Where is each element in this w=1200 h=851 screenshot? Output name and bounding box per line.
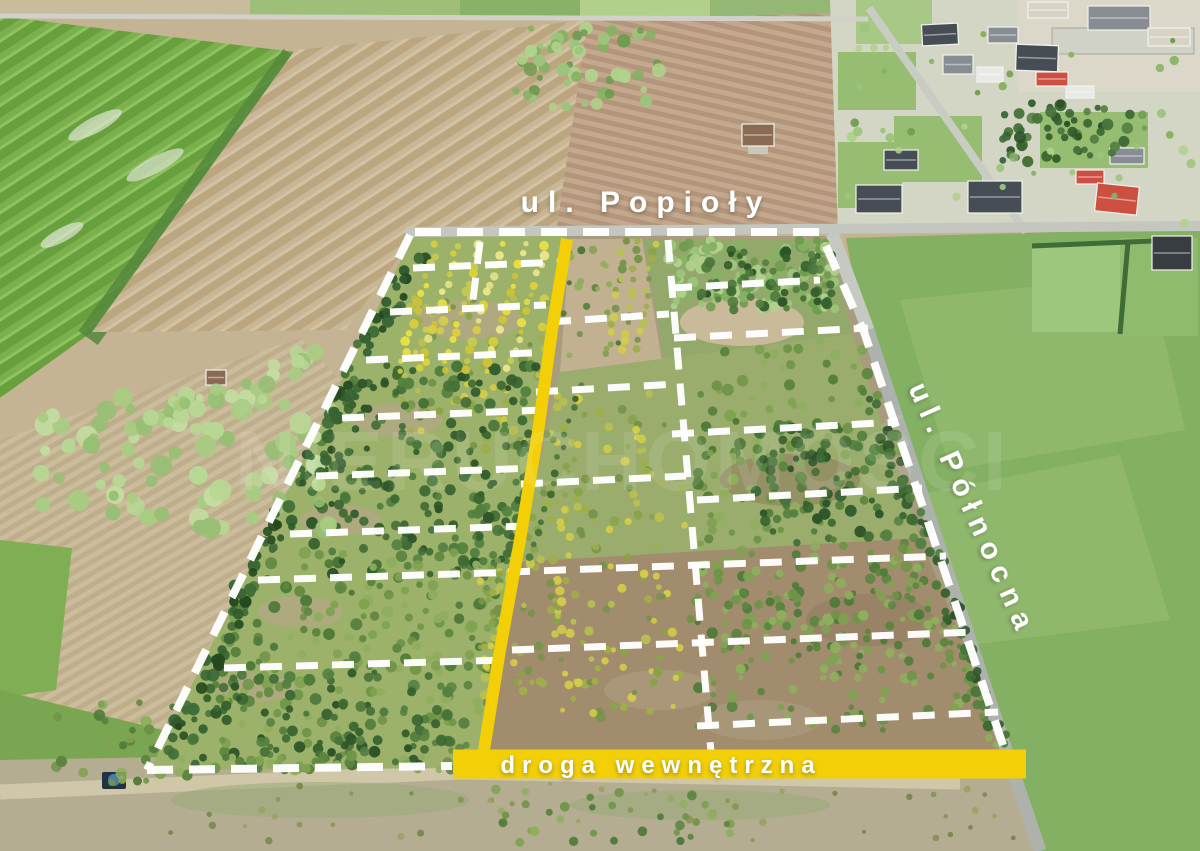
street-label-popioly: ul. Popioły [521,186,772,219]
road-top [0,16,868,19]
watermark-text: NIERUCHOMOŚCI [235,414,1010,508]
internal-road-label: droga wewnętrzna [500,752,821,779]
aerial-photo: NIERUCHOMOŚCI ul. Popioły ul. Północna d… [0,0,1200,851]
